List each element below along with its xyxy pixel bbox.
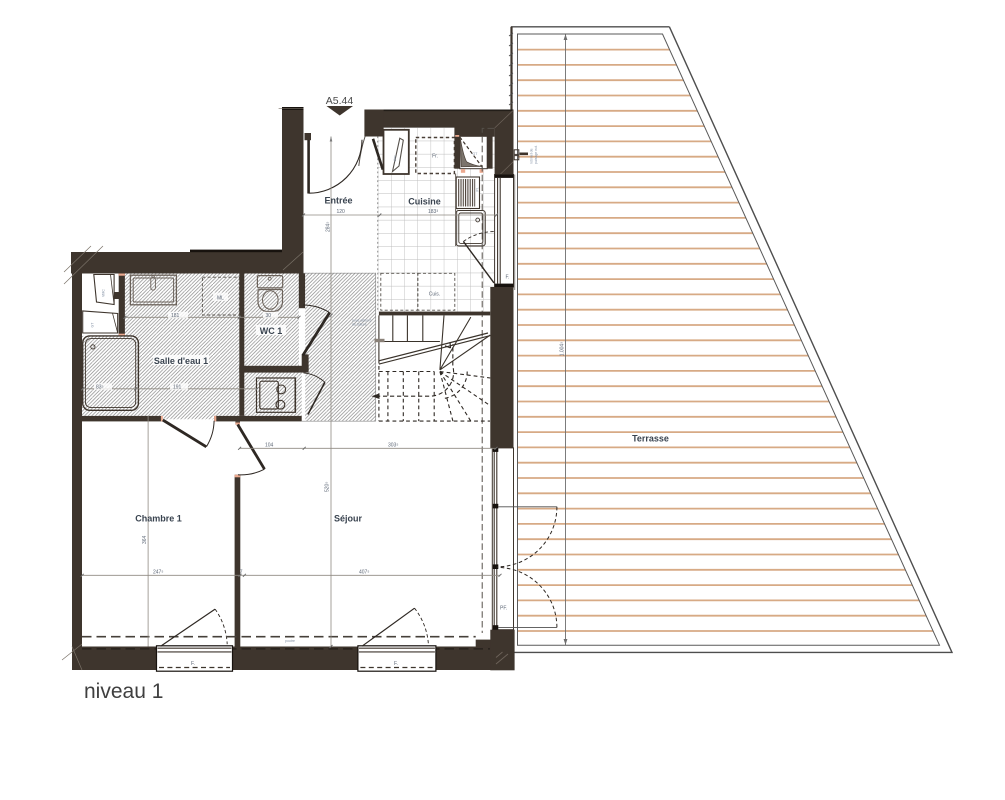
svg-text:Cuis.: Cuis. <box>429 292 440 298</box>
svg-text:83⁵: 83⁵ <box>96 384 104 390</box>
svg-text:F.: F. <box>394 661 398 667</box>
svg-text:120: 120 <box>337 209 346 215</box>
svg-text:303⁵: 303⁵ <box>388 442 398 448</box>
svg-text:ML: ML <box>217 295 224 301</box>
svg-text:GT: GT <box>91 322 95 328</box>
svg-text:poutre: poutre <box>285 639 295 643</box>
svg-text:284⁵: 284⁵ <box>326 222 332 232</box>
svg-text:de toiture: de toiture <box>352 323 367 327</box>
svg-text:VMC: VMC <box>102 289 106 297</box>
svg-text:puisage ext.: puisage ext. <box>534 145 538 164</box>
svg-text:élec.: élec. <box>393 154 397 161</box>
svg-text:niveau 1: niveau 1 <box>84 680 163 703</box>
svg-text:183³: 183³ <box>428 209 438 215</box>
svg-text:Entrée: Entrée <box>324 196 352 206</box>
svg-text:364: 364 <box>142 535 148 544</box>
svg-text:Chambre 1: Chambre 1 <box>135 514 182 524</box>
svg-text:Séjour: Séjour <box>334 514 363 524</box>
svg-text:WC 1: WC 1 <box>260 326 283 336</box>
svg-text:Terrasse: Terrasse <box>632 434 669 444</box>
svg-text:30: 30 <box>266 313 272 319</box>
svg-text:Pl.: Pl. <box>475 187 479 191</box>
svg-text:191: 191 <box>173 384 182 390</box>
svg-text:Fr.: Fr. <box>432 154 438 160</box>
svg-text:407⁵: 407⁵ <box>359 569 369 575</box>
svg-text:Cuisine: Cuisine <box>408 197 441 207</box>
svg-text:1.004⁵: 1.004⁵ <box>559 342 565 357</box>
svg-text:181: 181 <box>171 313 180 319</box>
svg-text:520⁵: 520⁵ <box>324 482 330 492</box>
svg-text:7: 7 <box>240 569 243 575</box>
svg-text:GT: GT <box>473 152 479 156</box>
svg-text:F.: F. <box>506 275 510 281</box>
svg-text:F.: F. <box>191 661 195 667</box>
svg-text:247⁵: 247⁵ <box>153 569 163 575</box>
svg-text:A5.44: A5.44 <box>326 95 354 107</box>
svg-text:PF.: PF. <box>500 606 507 612</box>
svg-text:104: 104 <box>265 442 274 448</box>
svg-text:Salle d'eau 1: Salle d'eau 1 <box>154 356 208 366</box>
